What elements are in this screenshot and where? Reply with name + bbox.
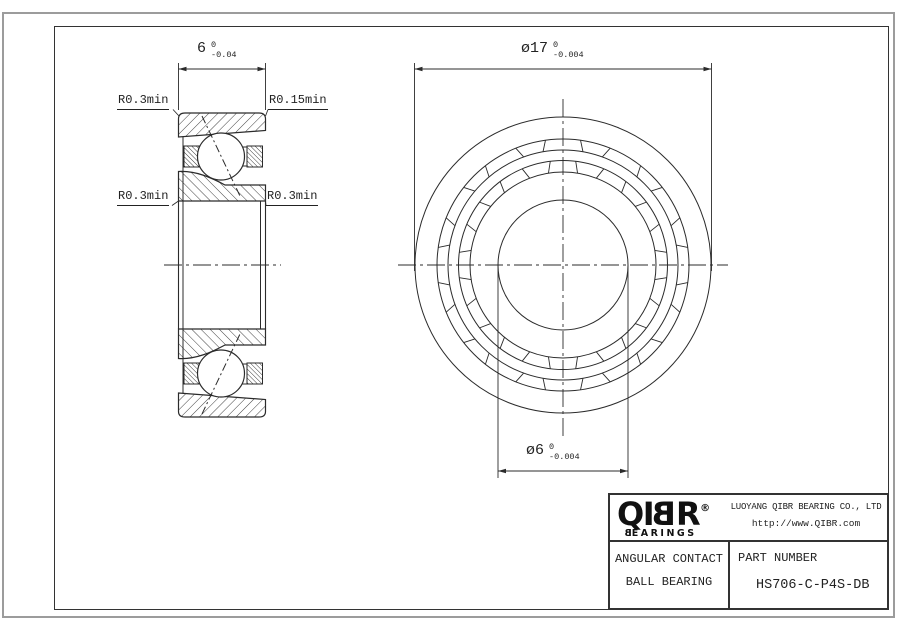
fillet-annotation-top-left: R0.3min [117,94,169,110]
part-number-value: HS706-C-P4S-DB [756,578,869,593]
bore-diameter-tolerance: 0 -0.004 [549,442,580,462]
width-dimension-tolerance: 0 -0.04 [211,40,237,60]
title-block-vertical-divider [728,540,730,608]
product-type: ANGULAR CONTACT BALL BEARING [610,548,728,594]
part-number-label: PART NUMBER [738,551,817,565]
title-block-horizontal-divider [610,540,887,542]
width-dimension-value: 6 [197,41,206,56]
company-website: http://www.QIBR.com [728,518,884,529]
outer-diameter-tolerance: 0 -0.004 [553,40,584,60]
product-type-line2: BALL BEARING [610,571,728,594]
outer-diameter-value: 17 [530,41,548,56]
width-dimension: 6 0 -0.04 [197,41,237,61]
sheet: { "drawing": { "left_view": { "width_dim… [0,0,900,636]
outer-diameter-prefix: ø [521,41,530,56]
bore-diameter-prefix: ø [526,443,535,458]
fillet-annotation-mid-left: R0.3min [117,190,169,206]
brand-logo: QIBR® BEARINGS [617,498,710,539]
bore-diameter-value: 6 [535,443,544,458]
registered-trademark: ® [700,503,710,514]
company-info: LUOYANG QIBR BEARING CO., LTD http://www… [728,502,884,529]
fillet-annotation-top-right: R0.15min [268,94,328,110]
fillet-annotation-mid-right: R0.3min [266,190,318,206]
brand-wordmark: QIBR® [617,498,710,530]
title-block: QIBR® BEARINGS LUOYANG QIBR BEARING CO.,… [608,493,889,610]
company-name: LUOYANG QIBR BEARING CO., LTD [728,502,884,512]
product-type-line1: ANGULAR CONTACT [610,548,728,571]
bore-diameter-dimension: ø 6 0 -0.004 [526,443,580,463]
drawing-linework [164,63,728,478]
outer-diameter-dimension: ø 17 0 -0.004 [521,41,584,61]
